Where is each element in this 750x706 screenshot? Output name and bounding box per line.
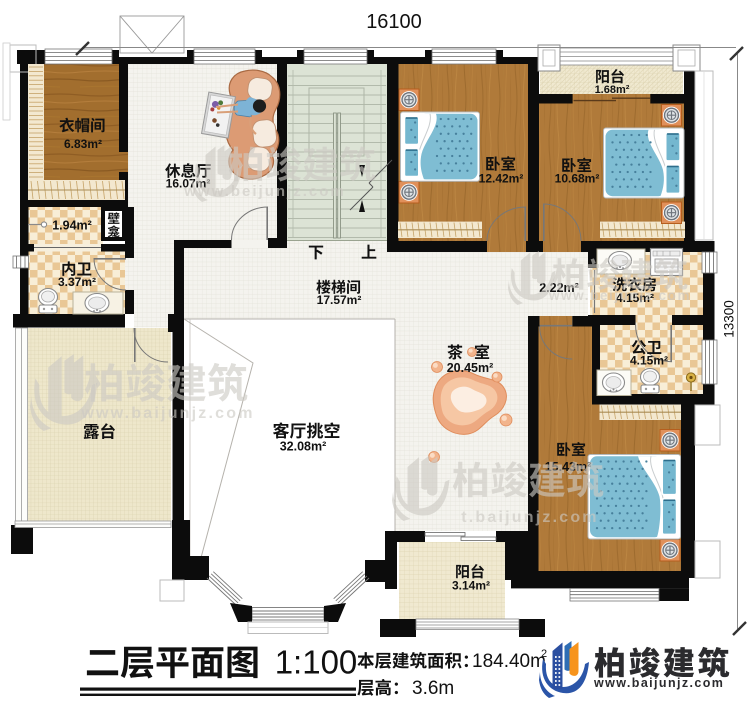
svg-text:184.40m: 184.40m: [472, 651, 546, 672]
svg-text:17.57m²: 17.57m²: [317, 293, 362, 307]
svg-text:www.baijunjz.com: www.baijunjz.com: [80, 405, 254, 422]
svg-text:3.37m²: 3.37m²: [58, 275, 96, 289]
svg-text:13300: 13300: [722, 300, 737, 338]
svg-text:4.15m²: 4.15m²: [630, 354, 668, 368]
svg-text:1.68m²: 1.68m²: [595, 84, 630, 96]
svg-text:1.94m²: 1.94m²: [52, 219, 92, 233]
svg-text:10.68m²: 10.68m²: [555, 172, 600, 186]
svg-text:12.42m²: 12.42m²: [479, 172, 524, 186]
svg-text:32.08m²: 32.08m²: [280, 440, 327, 454]
svg-text:www.beijunjz.com: www.beijunjz.com: [183, 183, 345, 200]
svg-text:2: 2: [541, 648, 547, 660]
svg-text:6.83m²: 6.83m²: [64, 137, 102, 151]
svg-text:www.baijunjz.com: www.baijunjz.com: [593, 676, 724, 690]
svg-text:16100: 16100: [366, 11, 422, 33]
svg-text:3.6m: 3.6m: [412, 678, 454, 699]
svg-text:www.beijunjz.com: www.beijunjz.com: [548, 288, 691, 303]
svg-text:1:100: 1:100: [275, 644, 358, 681]
svg-text:t.baijunjz.com: t.baijunjz.com: [461, 509, 598, 526]
svg-text:3.14m²: 3.14m²: [452, 579, 490, 593]
svg-text:20.45m²: 20.45m²: [447, 361, 494, 375]
